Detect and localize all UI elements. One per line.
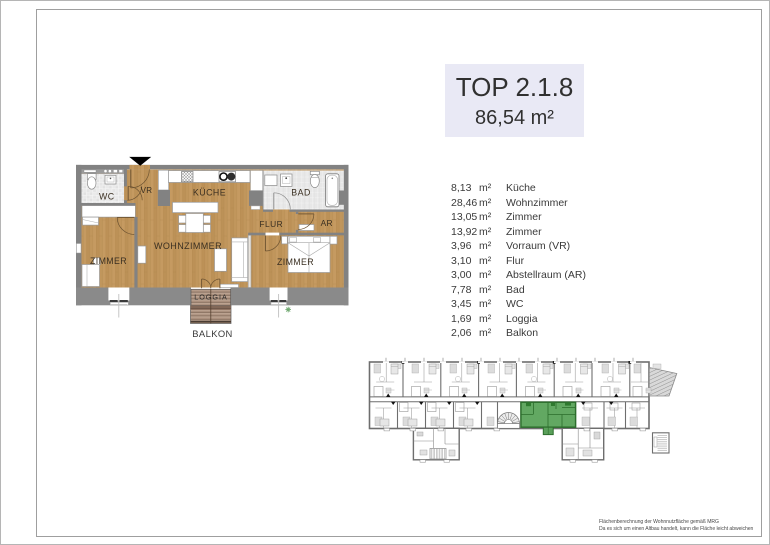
svg-text:BALKON: BALKON [192, 328, 232, 339]
svg-text:WC: WC [99, 192, 115, 202]
svg-text:ZIMMER: ZIMMER [90, 256, 127, 266]
svg-text:BAD: BAD [291, 188, 311, 198]
svg-text:ZIMMER: ZIMMER [277, 257, 314, 267]
svg-text:FLUR: FLUR [259, 219, 283, 229]
svg-text:AR: AR [321, 218, 333, 228]
svg-text:VR: VR [141, 186, 153, 195]
svg-text:KÜCHE: KÜCHE [193, 188, 226, 198]
svg-text:LOGGIA: LOGGIA [194, 293, 228, 302]
svg-text:WOHNZIMMER: WOHNZIMMER [154, 241, 222, 251]
